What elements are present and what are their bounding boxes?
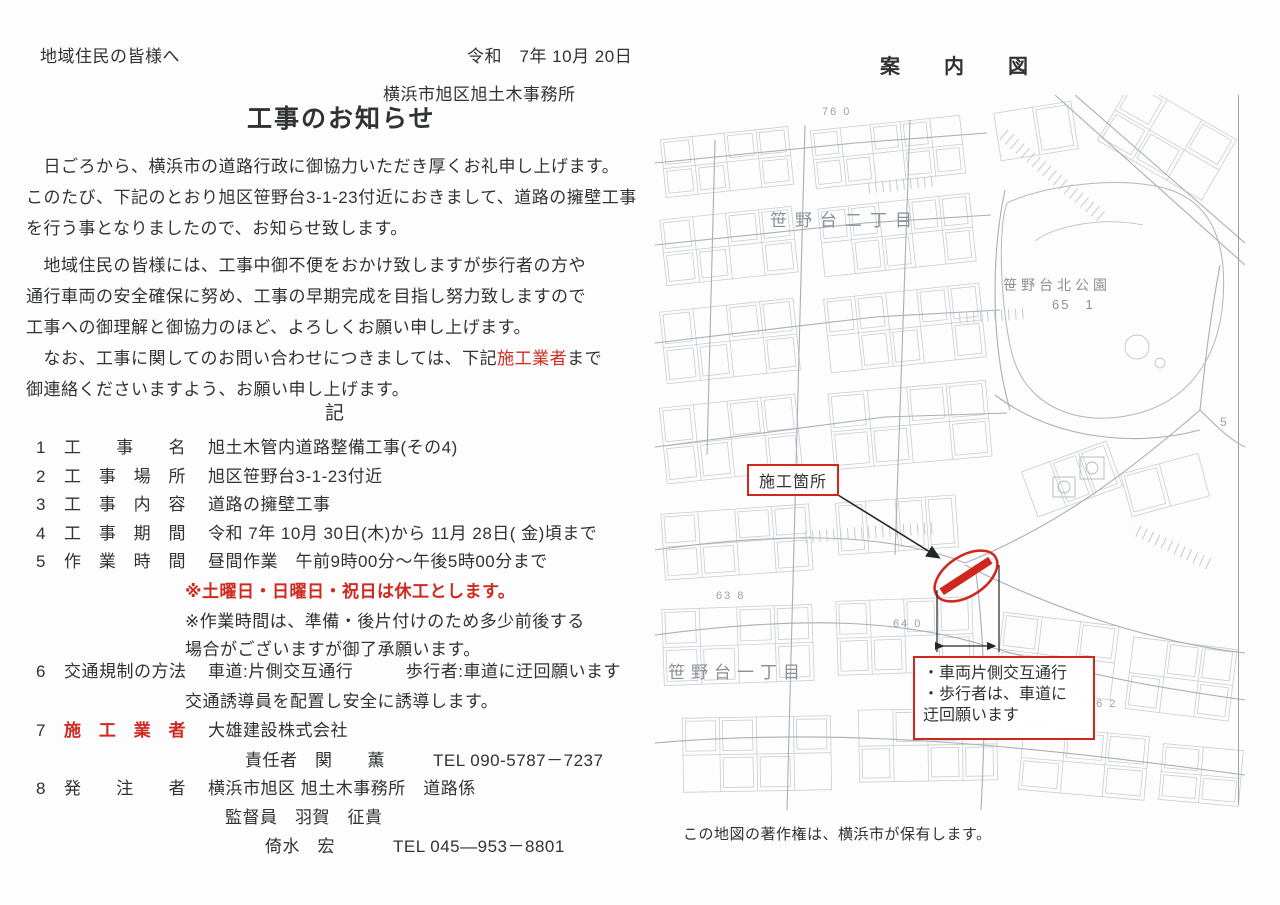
map-right-border-line [1238, 95, 1239, 805]
item-value: 道路の擁壁工事 [208, 495, 331, 514]
item-value: 大雄建設株式会社 [208, 721, 348, 740]
item-label: 発 注 者 [64, 778, 186, 799]
item-label: 作 業 時 間 [64, 551, 186, 572]
item-value: 昼間作業 午前9時00分〜午後5時00分まで [208, 552, 548, 571]
construction-location-text: 施工箇所 [759, 468, 827, 492]
elevation-label-76: 76 0 [822, 106, 851, 120]
supervisor-line2: 倚水 宏TEL 045—953－8801 [265, 836, 565, 857]
callout-line: ・歩行者は、車道に [923, 684, 1085, 705]
item-value: 令和 7年 10月 30日(木)から 11月 28日( 金)頃まで [208, 524, 597, 543]
ki-heading: 記 [325, 402, 345, 426]
page-title: 工事のお知らせ [247, 104, 436, 135]
paragraph-line: 工事への御理解と御協力のほど、よろしくお願い申し上げます。 [26, 317, 531, 338]
contractor-person: 責任者 関 薫 [245, 751, 385, 770]
item-row-5: 5作 業 時 間昼間作業 午前9時00分〜午後5時00分まで [36, 551, 548, 572]
holiday-note-red: ※土曜日・日曜日・祝日は休工とします。 [185, 581, 515, 602]
map-title: 案 内 図 [880, 55, 1040, 80]
item-row-2: 2工 事 場 所旭区笹野台3-1-23付近 [36, 466, 383, 487]
elevation-label-64: 64 0 [893, 618, 922, 632]
park-outline [1001, 183, 1223, 419]
park-number-label: 65 1 [1052, 297, 1095, 313]
park-name-label: 笹野台北公園 [1003, 277, 1111, 295]
item-label: 工 事 場 所 [64, 466, 186, 487]
supervisor-name: 倚水 宏 [265, 837, 335, 856]
paragraph-line: 御連絡くださいますよう、お願い申し上げます。 [26, 379, 409, 400]
item-label: 工 事 内 容 [64, 494, 186, 515]
item-no: 1 [36, 437, 64, 458]
item-no: 6 [36, 661, 64, 682]
map-copyright: この地図の著作権は、横浜市が保有します。 [683, 826, 992, 845]
issuing-office: 横浜市旭区旭土木事務所 [383, 84, 576, 105]
item-no: 5 [36, 551, 64, 572]
item-value: 旭区笹野台3-1-23付近 [208, 467, 383, 486]
paragraph-line: このたび、下記のとおり旭区笹野台3-1-23付近におきまして、道路の擁壁工事 [26, 187, 637, 208]
work-time-note: ※作業時間は、準備・後片付けのため多少前後する [185, 611, 585, 632]
paragraph-text: まで [567, 349, 602, 368]
item-no: 2 [36, 466, 64, 487]
addressee: 地域住民の皆様へ [40, 46, 180, 67]
item-row-7: 7施 工 業 者大雄建設株式会社 [36, 720, 348, 741]
item-row-3: 3工 事 内 容道路の擁壁工事 [36, 494, 331, 515]
item-row-1: 1工 事 名旭土木管内道路整備工事(その4) [36, 437, 458, 458]
paragraph-line: 通行車両の安全確保に努め、工事の早期完成を目指し努力致しますので [26, 286, 586, 307]
district-label-2chome: 笹野台二丁目 [770, 210, 920, 231]
contractor-label-red: 施 工 業 者 [64, 720, 186, 741]
item-label: 工 事 名 [64, 437, 186, 458]
contractor-tel: TEL 090-5787－7237 [433, 751, 603, 770]
traffic-guard-note: 交通誘導員を配置し安全に誘導します。 [185, 691, 498, 712]
paragraph-line: なお、工事に関してのお問い合わせにつきましては、下記施工業者まで [26, 348, 602, 369]
paragraph-line: 日ごろから、横浜市の道路行政に御協力いただき厚くお礼申し上げます。 [26, 156, 619, 177]
elevation-label-63: 63 8 [716, 590, 745, 604]
item-no: 8 [36, 778, 64, 799]
work-time-note: 場合がございますが御了承願います。 [185, 639, 481, 660]
item-row-4: 4工 事 期 間令和 7年 10月 30日(木)から 11月 28日( 金)頃ま… [36, 523, 597, 544]
issue-date: 令和 7年 10月 20日 [467, 46, 632, 67]
office-tel: TEL 045—953－8801 [393, 837, 565, 856]
paragraph-line: を行う事となりましたので、お知らせ致します。 [26, 218, 408, 239]
supervisor-line: 監督員 羽賀 征貴 [225, 807, 383, 828]
item-no: 3 [36, 494, 64, 515]
item-row-8: 8発 注 者横浜市旭区 旭土木事務所 道路係 [36, 778, 476, 799]
district-label-1chome: 笹野台一丁目 [668, 662, 806, 683]
item-value: 横浜市旭区 旭土木事務所 道路係 [208, 779, 476, 798]
traffic-callout-box: ・車両片側交互通行 ・歩行者は、車道に 迂回願います [913, 656, 1095, 740]
item-label: 工 事 期 間 [64, 523, 186, 544]
construction-notice-page: 地域住民の皆様へ 令和 7年 10月 20日 横浜市旭区旭土木事務所 工事のお知… [0, 0, 1280, 905]
edge-label-5: 5 [1220, 415, 1229, 430]
callout-line: 迂回願います [923, 705, 1085, 726]
contractor-ref-red: 施工業者 [497, 349, 567, 368]
paragraph-line: 地域住民の皆様には、工事中御不便をおかけ致しますが歩行者の方や [26, 255, 586, 276]
construction-location-label: 施工箇所 [747, 464, 839, 496]
item-no: 7 [36, 720, 64, 741]
item-no: 4 [36, 523, 64, 544]
callout-line: ・車両片側交互通行 [923, 663, 1085, 684]
paragraph-text: なお、工事に関してのお問い合わせにつきましては、下記 [26, 349, 497, 368]
item-row-6: 6交通規制の方法車道:片側交互通行 歩行者:車道に迂回願います [36, 661, 621, 682]
item-value: 旭土木管内道路整備工事(その4) [208, 438, 458, 457]
contractor-person-line: 責任者 関 薫TEL 090-5787－7237 [245, 750, 603, 771]
item-value: 車道:片側交互通行 歩行者:車道に迂回願います [208, 662, 621, 681]
item-label: 交通規制の方法 [64, 661, 186, 682]
